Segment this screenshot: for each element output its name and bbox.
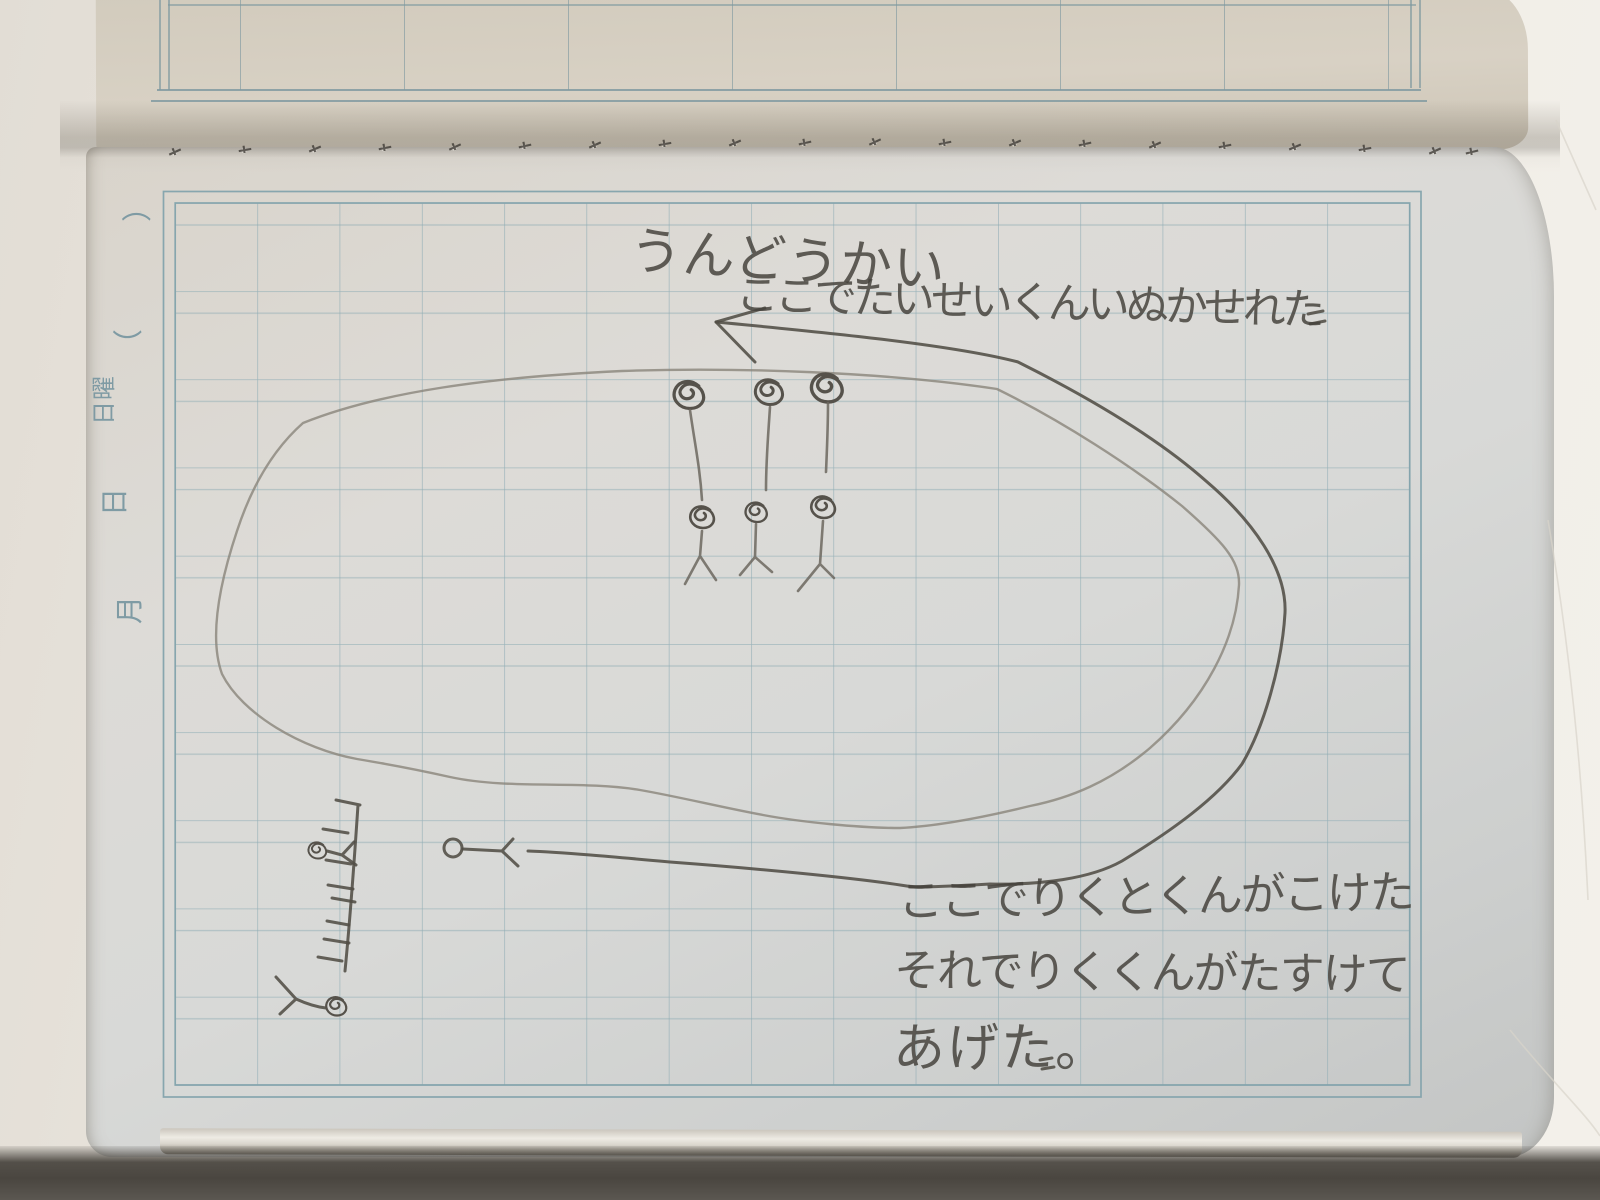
drawing-overlay: ） （ 曜 日 日 月: [0, 0, 1600, 1200]
notebook-photo: ） （ 曜 日 日 月: [0, 0, 1600, 1200]
handwritten-caption-bottom-1: ここでりくとくんがこけた: [897, 856, 1413, 930]
weekday-label: 曜: [90, 376, 118, 400]
day-label: 日: [98, 488, 131, 516]
handwritten-caption-bottom-3: あげた。: [893, 1006, 1109, 1081]
binding-stitches: [169, 137, 1479, 156]
month-label: 月: [113, 596, 146, 624]
weekday-day-label: 日: [90, 401, 118, 425]
paren-close-label: ）: [121, 192, 156, 222]
paren-open-label: （: [112, 329, 147, 359]
margin-labels: ） （ 曜 日 日 月: [90, 192, 156, 624]
top-page-grid: [151, 0, 1427, 101]
handwritten-caption-bottom-2: それでりくくんがたすけて: [894, 934, 1409, 1003]
desk-scratches: [1510, 120, 1600, 1136]
